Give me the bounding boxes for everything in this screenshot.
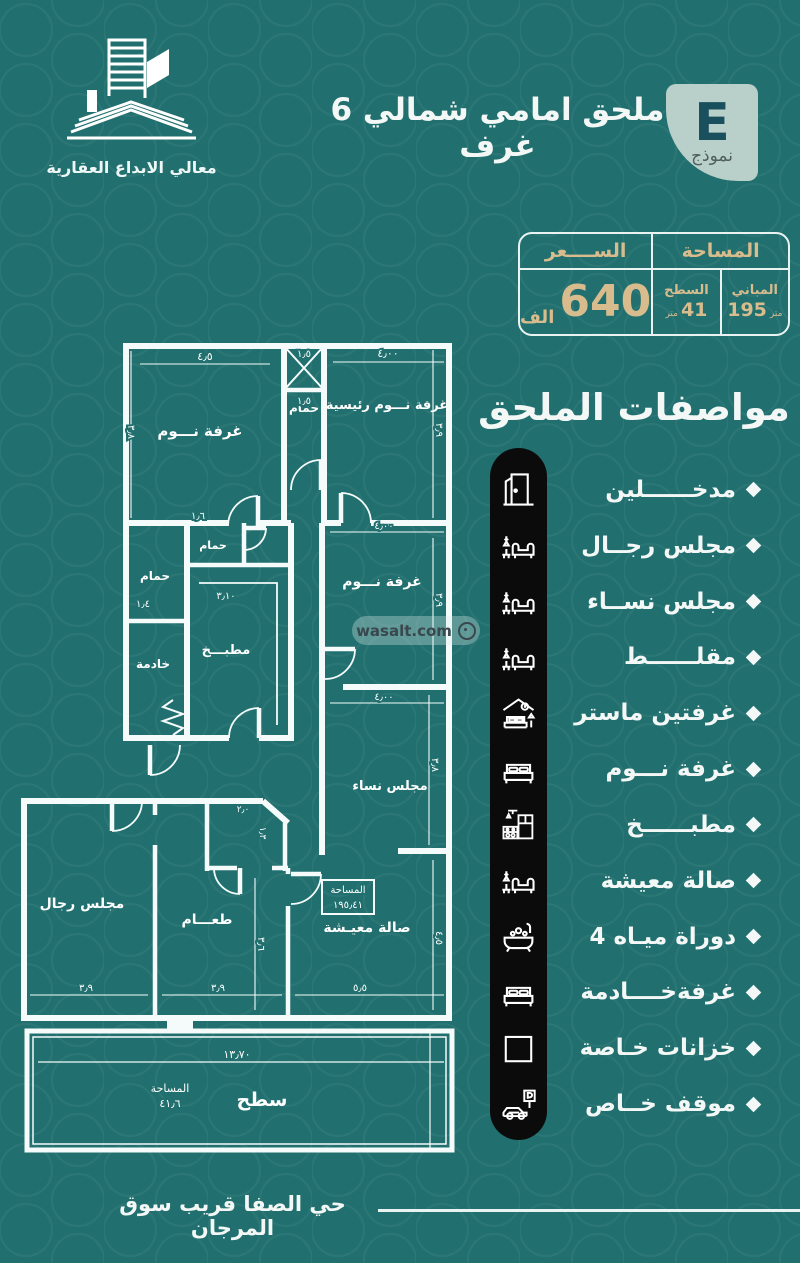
area-box-value: ١٩٥٫٤١ <box>333 900 363 911</box>
spec-label: مقلــــــط <box>557 644 740 670</box>
spec-label: خزانات خـاصة <box>557 1035 740 1061</box>
master-bed-icon <box>480 695 557 732</box>
spec-label: مجلس رجــال <box>557 533 740 559</box>
area-header: المساحة <box>653 234 788 270</box>
spec-label: مجلس نســاء <box>557 589 740 615</box>
buildings-unit: متر <box>770 309 783 319</box>
door-arcs <box>112 460 371 904</box>
buildings-label: المباني <box>732 283 778 298</box>
dimension-label: ٣٫٨ <box>429 758 440 773</box>
roof-area-value: ٤١٫٦ <box>159 1097 180 1110</box>
spec-row-bathrooms: 4 دوراة ميـاه <box>480 909 800 965</box>
roof-unit: متر <box>665 309 678 319</box>
square-icon <box>480 1030 557 1067</box>
roof-area-cell: السطح متر 41 <box>653 270 719 334</box>
room-label: مطبـــخ <box>202 643 251 658</box>
dimension-label: ١٫٥ <box>297 396 311 407</box>
dimension-label: ١٫٤ <box>136 599 150 610</box>
watermark: wasalt.com <box>352 616 480 645</box>
room-label: سطح <box>237 1089 288 1111</box>
buildings-area-cell: المباني 195 متر <box>720 270 788 334</box>
area-box-title: المساحة <box>330 885 365 896</box>
car-parking-icon <box>480 1086 557 1123</box>
diamond-bullet-icon <box>740 1099 766 1110</box>
dimension-label: ١٫٦ <box>191 511 205 522</box>
spec-row-tanks: خزانات خـاصة <box>480 1020 800 1076</box>
footer-divider-line <box>378 1209 800 1212</box>
diamond-bullet-icon <box>740 708 766 719</box>
diamond-bullet-icon <box>740 875 766 886</box>
spec-label: مدخــــــلين <box>557 477 740 503</box>
room-label: حمام <box>140 569 170 584</box>
zigzag-symbol <box>163 700 183 735</box>
roof-value: 41 <box>681 299 707 321</box>
area-box: المساحة ١٩٥٫٤١ <box>322 880 374 914</box>
room-label: مجلس نساء <box>352 779 427 794</box>
spec-label: مطبــــــخ <box>557 812 740 838</box>
room-label: غرفة نـــوم رئيسية <box>326 398 448 413</box>
brand-name: معالي الابداع العقارية <box>44 158 219 177</box>
room-label: صالة معيـشة <box>323 920 410 936</box>
price-area-table: المساحة المباني 195 متر السطح متر 41 الس… <box>518 232 790 336</box>
room-label: خادمة <box>136 657 170 671</box>
dimension-label: ٤٫٥ <box>433 931 444 945</box>
company-logo: معالي الابداع العقارية <box>44 32 219 177</box>
roof-terrace <box>27 1021 452 1150</box>
sofa-icon <box>480 862 557 899</box>
page-title: ملحق امامي شمالي 6 غرف <box>325 92 670 164</box>
sofa-icon <box>480 583 557 620</box>
dimension-label: ٣٫٩ <box>211 983 225 994</box>
diamond-bullet-icon <box>740 987 766 998</box>
spec-row-master-rooms: غرفتين ماستر <box>480 685 800 741</box>
bathtub-icon <box>480 918 557 955</box>
area-column: المساحة المباني 195 متر السطح متر 41 <box>651 234 788 334</box>
model-word: نموذج <box>691 146 733 166</box>
plan-text-labels: غرفة نـــومحمامغرفة نـــوم رئيسيةحمامحما… <box>40 347 449 1111</box>
spec-row-men-majlis: مجلس رجــال <box>480 518 800 574</box>
dimension-label: ٣٫٩ <box>433 593 444 607</box>
price-unit: الف <box>520 307 554 328</box>
model-letter: E <box>694 99 730 148</box>
room-label: غرفة نـــوم <box>157 422 242 440</box>
buildings-value: 195 <box>727 299 767 321</box>
roof-label: السطح <box>664 283 709 298</box>
spec-row-entrances: مدخــــــلين <box>480 462 800 518</box>
floor-plan: المساحة ١٩٥٫٤١ المساحة ٤١٫٦ غرفة نـــومح… <box>0 330 490 1165</box>
wasalt-logo-icon <box>458 622 476 640</box>
diamond-bullet-icon <box>740 1043 766 1054</box>
spec-label: موقف خــاص <box>557 1091 740 1117</box>
diamond-bullet-icon <box>740 764 766 775</box>
room-label: طعـــام <box>182 912 233 928</box>
dimension-label: ١٣٫٧٠ <box>223 1048 250 1061</box>
dimension-label: ١٫٣ <box>257 827 267 840</box>
dimension-label: ٤٫٠٠ <box>374 692 393 703</box>
specs-list: مدخــــــلين مجلس رجــال مجلس نســاء مقل… <box>480 462 800 1132</box>
spec-row-women-majlis: مجلس نســاء <box>480 574 800 630</box>
dimension-label: ١٫٥ <box>297 349 311 360</box>
dimension-label: ٣٫٨ <box>125 425 136 440</box>
dimension-label: ٣٫١٠ <box>216 591 235 602</box>
dimension-label: ٣٫٩ <box>433 423 444 437</box>
spec-row-bedroom: غرفة نـــوم <box>480 741 800 797</box>
diamond-bullet-icon <box>740 819 766 830</box>
spec-row-maid-room: غرفةخــــادمة <box>480 964 800 1020</box>
kitchen-icon <box>480 806 557 843</box>
dimension-label: ٤٫٥ <box>197 350 212 363</box>
dimension-label: ٣٫٦ <box>255 937 266 951</box>
spec-label: صالة معيشة <box>557 868 740 894</box>
price-column: الســــعر 640 الف <box>520 234 651 334</box>
spec-label: غرفةخــــادمة <box>557 979 740 1005</box>
diamond-bullet-icon <box>740 931 766 942</box>
diamond-bullet-icon <box>740 484 766 495</box>
dimension-label: ٤٫٠٠ <box>374 521 393 532</box>
roof-area-title: المساحة <box>151 1082 190 1095</box>
spec-row-parking: موقف خــاص <box>480 1076 800 1132</box>
dimension-label: ٢٫٠ <box>237 805 250 815</box>
bed-icon <box>480 751 557 788</box>
spec-row-muqallat: مقلــــــط <box>480 629 800 685</box>
spec-label: 4 دوراة ميـاه <box>557 924 740 950</box>
diamond-bullet-icon <box>740 596 766 607</box>
bed-icon <box>480 974 557 1011</box>
spec-label: غرفتين ماستر <box>557 700 740 726</box>
sofa-icon <box>480 527 557 564</box>
price-value: 640 <box>559 280 651 324</box>
diamond-bullet-icon <box>740 652 766 663</box>
room-label: غرفة نـــوم <box>342 574 421 590</box>
building-logo-icon <box>49 32 214 152</box>
door-icon <box>480 471 557 508</box>
spec-row-living: صالة معيشة <box>480 853 800 909</box>
spec-row-kitchen: مطبــــــخ <box>480 797 800 853</box>
dimension-label: ٣٫٩ <box>79 983 93 994</box>
dimension-label: ٥٫٥ <box>353 983 367 994</box>
diamond-bullet-icon <box>740 540 766 551</box>
spec-label: غرفة نـــوم <box>557 756 740 782</box>
room-label: حمام <box>199 539 227 552</box>
footer-location: حي الصفا قريب سوق المرجان <box>95 1192 370 1240</box>
specs-heading: مواصفات الملحق <box>478 386 790 429</box>
price-header: الســــعر <box>520 234 651 270</box>
room-label: مجلس رجال <box>40 896 125 912</box>
dimension-label: ٤٫٠٠ <box>377 347 398 360</box>
sofa-icon <box>480 639 557 676</box>
watermark-text: wasalt.com <box>356 622 452 640</box>
